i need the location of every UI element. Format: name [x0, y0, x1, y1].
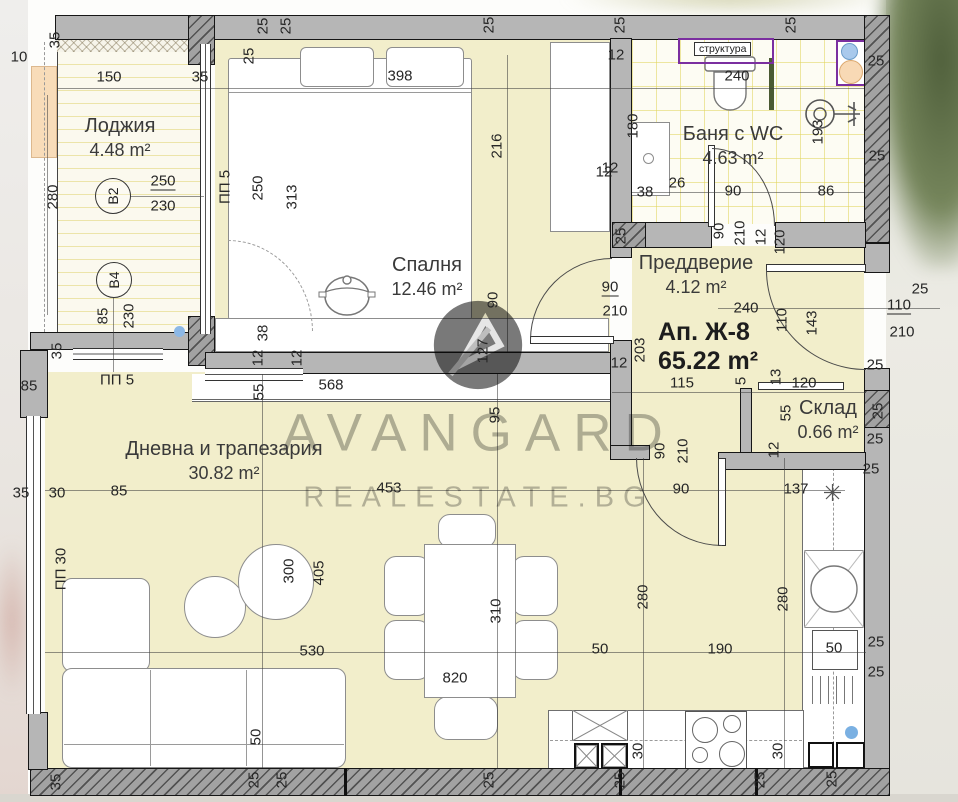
badge-label: B4 — [106, 271, 122, 288]
foliage-top — [560, 0, 900, 16]
sofa-cushion-line-2 — [246, 670, 247, 766]
room-label-bathroom: Баня с WC 4.63 m² — [683, 123, 784, 169]
apartment-number: Ап. Ж-8 — [658, 318, 758, 347]
dim-line — [718, 308, 940, 309]
room-name: Спалня — [391, 254, 462, 277]
room-label-anteroom: Преддверие 4.12 m² — [639, 252, 753, 298]
burner-1 — [692, 717, 718, 743]
room-area: 0.66 m² — [797, 422, 858, 443]
wardrobe — [550, 42, 610, 232]
snowflake-symbol — [824, 484, 841, 501]
structure-niche-label: структура — [694, 42, 751, 56]
dim-line — [57, 88, 864, 89]
dining-chair-right-1 — [512, 556, 558, 616]
site-watermark: REALESTATE.BG — [303, 482, 654, 515]
pier-left-bottom — [28, 712, 48, 770]
dim-line — [45, 652, 866, 653]
sofa-main — [62, 668, 346, 768]
faucet-icon — [643, 153, 654, 164]
dish-drainer — [812, 676, 858, 704]
room-name: Дневна и трапезария — [125, 438, 322, 461]
wall-bottom — [30, 768, 890, 796]
room-area: 4.48 m² — [85, 140, 156, 161]
dining-chair-right-2 — [512, 620, 558, 680]
boiler-orange — [839, 60, 863, 84]
towel-radiator — [769, 58, 774, 110]
dim-line — [784, 458, 785, 768]
dimension-label: 12 — [754, 229, 769, 246]
dining-chair-bottom — [434, 696, 498, 740]
pipe-dot — [174, 326, 185, 337]
structure-niche: структура — [678, 38, 774, 64]
room-name: Лоджия — [85, 115, 156, 138]
badge-b4: B4 — [96, 262, 132, 298]
appliance-box-bottom-1 — [574, 743, 599, 769]
sofa-chaise — [62, 578, 150, 672]
room-area: 12.46 m² — [391, 279, 462, 300]
room-name: Склад — [797, 397, 858, 420]
wall-top — [55, 15, 890, 40]
window-pp5-living — [205, 368, 303, 381]
pier-bath-bottom — [612, 222, 646, 248]
floor-plan: AVANGARD REALESTATE.BG Лоджия 4.48 m² Сп… — [0, 0, 958, 802]
room-label-storage: Склад 0.66 m² — [797, 397, 858, 443]
apartment-title: Ап. Ж-8 65.22 m² — [658, 318, 758, 376]
appliance-box-right-1 — [808, 742, 834, 768]
appliance-box-bottom-2 — [601, 743, 628, 769]
room-label-bedroom: Спалня 12.46 m² — [391, 254, 462, 300]
storage-door-leaf — [758, 382, 844, 390]
wall-storage-left — [740, 388, 752, 458]
appliance-box-right-2 — [836, 742, 865, 769]
room-area: 4.12 m² — [639, 277, 753, 298]
pier-left-middle — [20, 350, 48, 418]
wall-right-lower — [864, 368, 890, 770]
wall-storage-bottom — [718, 452, 866, 470]
kitchen-sink — [804, 550, 864, 628]
sofa-back-line — [64, 744, 344, 745]
dim-line — [47, 95, 48, 315]
basin-blue — [841, 43, 858, 60]
wall-right-upper — [864, 15, 890, 243]
sofa-cushion-line-1 — [150, 670, 151, 766]
brand-watermark: AVANGARD — [282, 403, 676, 464]
window-loggia-living — [73, 348, 163, 360]
burner-2 — [723, 715, 741, 733]
room-name: Преддверие — [639, 252, 753, 275]
dim-line — [612, 392, 866, 393]
room-name: Баня с WC — [683, 123, 784, 146]
wall-bath-bottom-right — [775, 222, 866, 248]
shower-head-icon — [798, 92, 864, 138]
kitchen-blue-dot — [845, 726, 858, 739]
shaft-x-box — [572, 710, 628, 741]
badge-b2: B2 — [95, 178, 131, 214]
room-area: 4.63 m² — [683, 148, 784, 169]
wall-bottom-joint-2 — [619, 768, 622, 796]
wall-bottom-joint-1 — [344, 768, 347, 796]
dining-table — [424, 544, 516, 698]
pillow-left — [300, 47, 374, 87]
room-area: 30.82 m² — [125, 463, 322, 484]
room-label-living: Дневна и трапезария 30.82 m² — [125, 438, 322, 484]
loggia-parapet-hatch — [57, 40, 201, 52]
room-label-loggia: Лоджия 4.48 m² — [85, 115, 156, 161]
bed-headboard-line — [229, 92, 471, 93]
wall-bottom-joint-3 — [755, 768, 758, 796]
coffee-table-small — [184, 576, 246, 638]
pier-right-storage — [864, 390, 890, 428]
brand-logo — [432, 299, 524, 391]
dim-line — [632, 192, 864, 193]
dining-chair-top — [438, 514, 496, 548]
window-left — [26, 416, 41, 714]
dim-line — [262, 374, 263, 768]
badge-leader-b2 — [130, 196, 204, 197]
loggia-edge-dashed — [44, 42, 45, 332]
pillow-right — [386, 47, 464, 87]
burner-4 — [719, 741, 745, 767]
badge-leader-b4 — [113, 298, 114, 372]
badge-label: B2 — [105, 187, 121, 204]
coffee-table-large — [238, 544, 314, 620]
pot-icon — [318, 266, 376, 318]
burner-3 — [692, 747, 708, 763]
dishwasher-box — [812, 630, 858, 670]
wall-right-entry-jamb — [864, 243, 890, 273]
apartment-area: 65.22 m² — [658, 347, 758, 376]
toilet-icon — [702, 56, 758, 116]
